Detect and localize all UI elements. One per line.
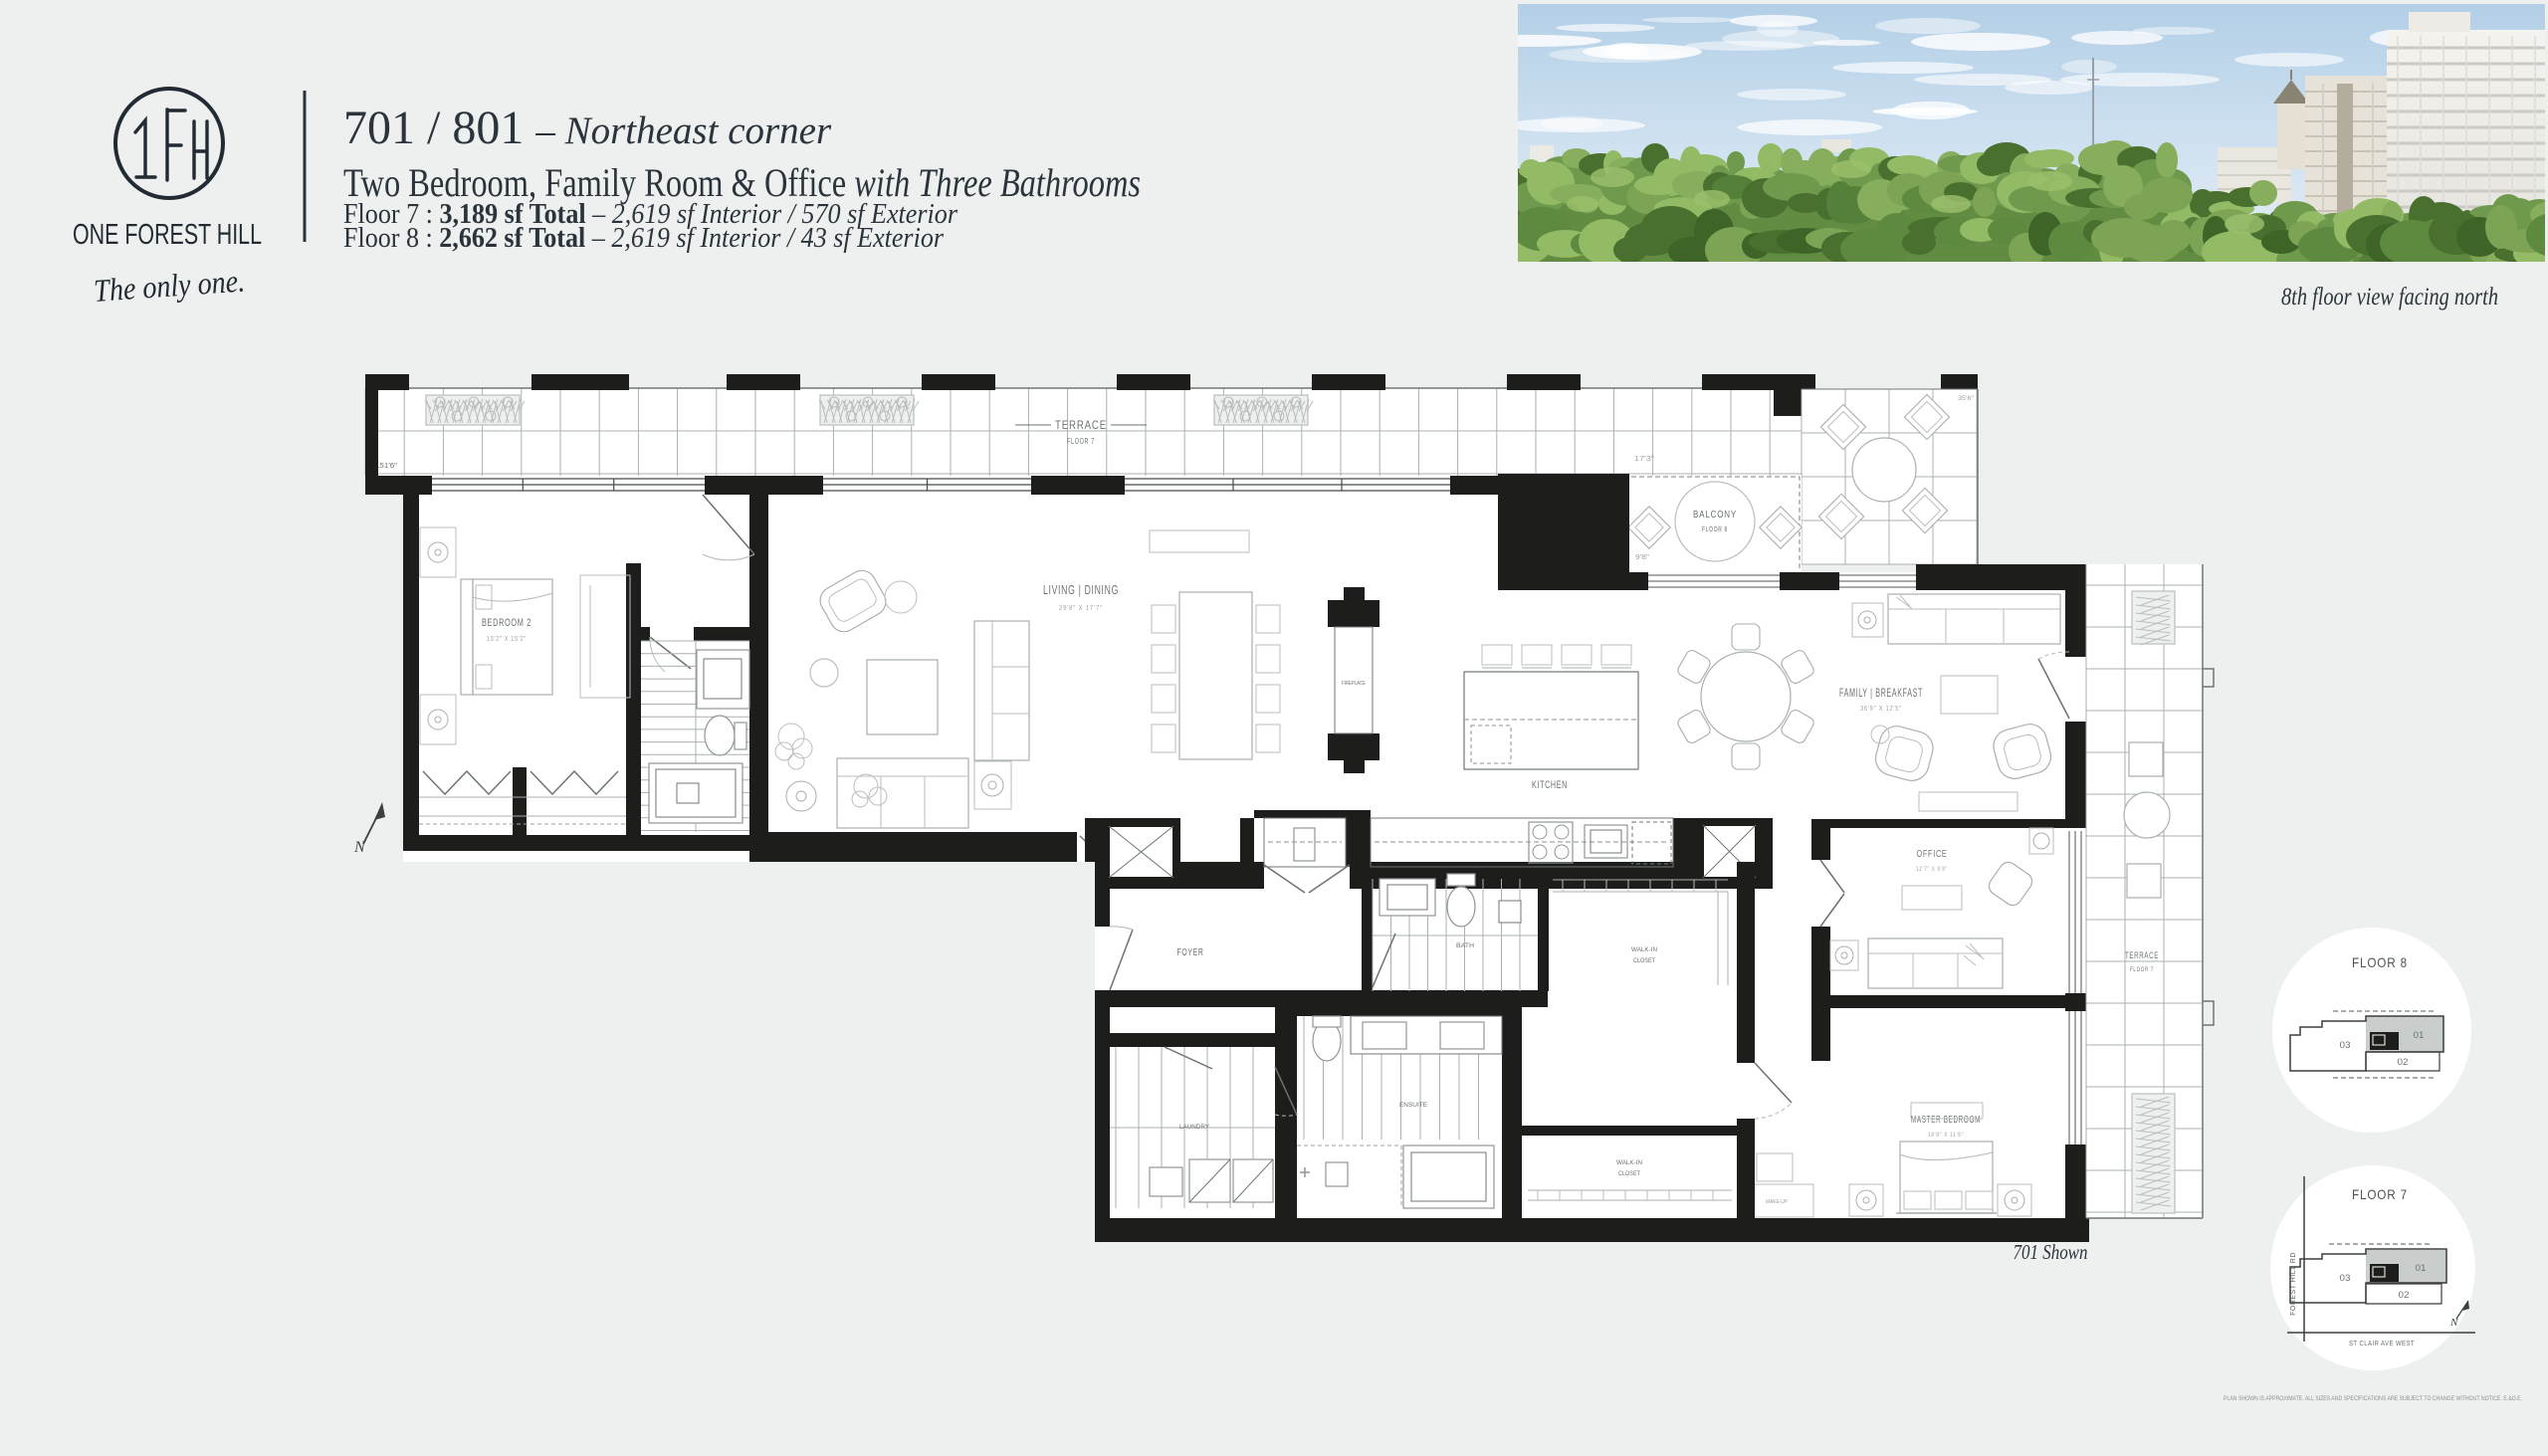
svg-text:ENSUITE: ENSUITE [1399, 1102, 1428, 1109]
svg-text:LIVING | DINING: LIVING | DINING [1043, 582, 1119, 597]
svg-text:29'8" X 17'7": 29'8" X 17'7" [1059, 605, 1103, 612]
svg-text:PLAN SHOWN IS APPROXIMATE. ALL: PLAN SHOWN IS APPROXIMATE. ALL SIZES AND… [2224, 1395, 2522, 1402]
svg-text:36'9" X 12'5": 36'9" X 12'5" [1860, 706, 1902, 713]
svg-text:FLOOR 8: FLOOR 8 [2352, 954, 2408, 970]
svg-text:03: 03 [2340, 1273, 2351, 1283]
svg-text:01: 01 [2416, 1263, 2427, 1273]
svg-text:35'6": 35'6" [1958, 396, 1974, 402]
svg-text:MAKE-UP: MAKE-UP [1766, 1199, 1789, 1205]
svg-text:BATH: BATH [1456, 943, 1474, 949]
svg-text:ONE FOREST HILL: ONE FOREST HILL [73, 219, 262, 251]
svg-text:Floor 8 : 2,662 sf Total – 2,6: Floor 8 : 2,662 sf Total – 2,619 sf Inte… [343, 223, 944, 254]
svg-text:ST CLAIR AVE WEST: ST CLAIR AVE WEST [2349, 1341, 2415, 1348]
svg-text:FIREPLACE: FIREPLACE [1342, 681, 1367, 687]
svg-text:TERRACE: TERRACE [2125, 950, 2159, 960]
svg-text:FLOOR 7: FLOOR 7 [2130, 966, 2154, 973]
svg-text:FOREST HILL RD: FOREST HILL RD [2290, 1252, 2297, 1316]
svg-text:WALK-IN: WALK-IN [1631, 946, 1657, 953]
svg-text:FLOOR 7: FLOOR 7 [2352, 1186, 2408, 1202]
svg-text:02: 02 [2399, 1290, 2410, 1300]
svg-text:9'8": 9'8" [1635, 554, 1650, 561]
svg-text:OFFICE: OFFICE [1917, 849, 1948, 860]
svg-text:N: N [353, 839, 366, 856]
svg-text:01: 01 [2414, 1030, 2425, 1040]
svg-text:FLOOR 8: FLOOR 8 [1702, 526, 1728, 533]
svg-text:12'7" X 9'8": 12'7" X 9'8" [1916, 866, 1948, 873]
svg-text:FOYER: FOYER [1177, 947, 1204, 958]
svg-text:BEDROOM 2: BEDROOM 2 [482, 617, 531, 629]
svg-text:LAUNDRY: LAUNDRY [1179, 1124, 1210, 1131]
svg-text:701 / 801 – Northeast corner: 701 / 801 – Northeast corner [343, 102, 832, 154]
svg-text:CLOSET: CLOSET [1633, 957, 1655, 964]
svg-text:CLOSET: CLOSET [1618, 1170, 1640, 1177]
svg-text:BALCONY: BALCONY [1693, 510, 1737, 520]
svg-text:17'3": 17'3" [1634, 456, 1655, 463]
svg-text:FLOOR 7: FLOOR 7 [1067, 437, 1095, 446]
svg-text:WALK-IN: WALK-IN [1616, 1159, 1642, 1166]
svg-text:18'8" X 11'6": 18'8" X 11'6" [1928, 1132, 1964, 1139]
svg-text:8th floor view facing north: 8th floor view facing north [2281, 284, 2498, 311]
svg-text:13'2" X 15'2": 13'2" X 15'2" [487, 636, 527, 643]
svg-text:KITCHEN: KITCHEN [1532, 779, 1568, 791]
svg-text:MASTER BEDROOM: MASTER BEDROOM [1911, 1115, 1981, 1126]
svg-text:02: 02 [2398, 1057, 2409, 1067]
svg-text:N: N [2449, 1317, 2458, 1329]
svg-text:03: 03 [2340, 1040, 2351, 1050]
svg-text:FAMILY | BREAKFAST: FAMILY | BREAKFAST [1839, 686, 1923, 700]
svg-text:TERRACE: TERRACE [1055, 418, 1107, 432]
svg-text:151'6": 151'6" [375, 463, 398, 470]
svg-text:701 Shown: 701 Shown [2014, 1240, 2088, 1264]
